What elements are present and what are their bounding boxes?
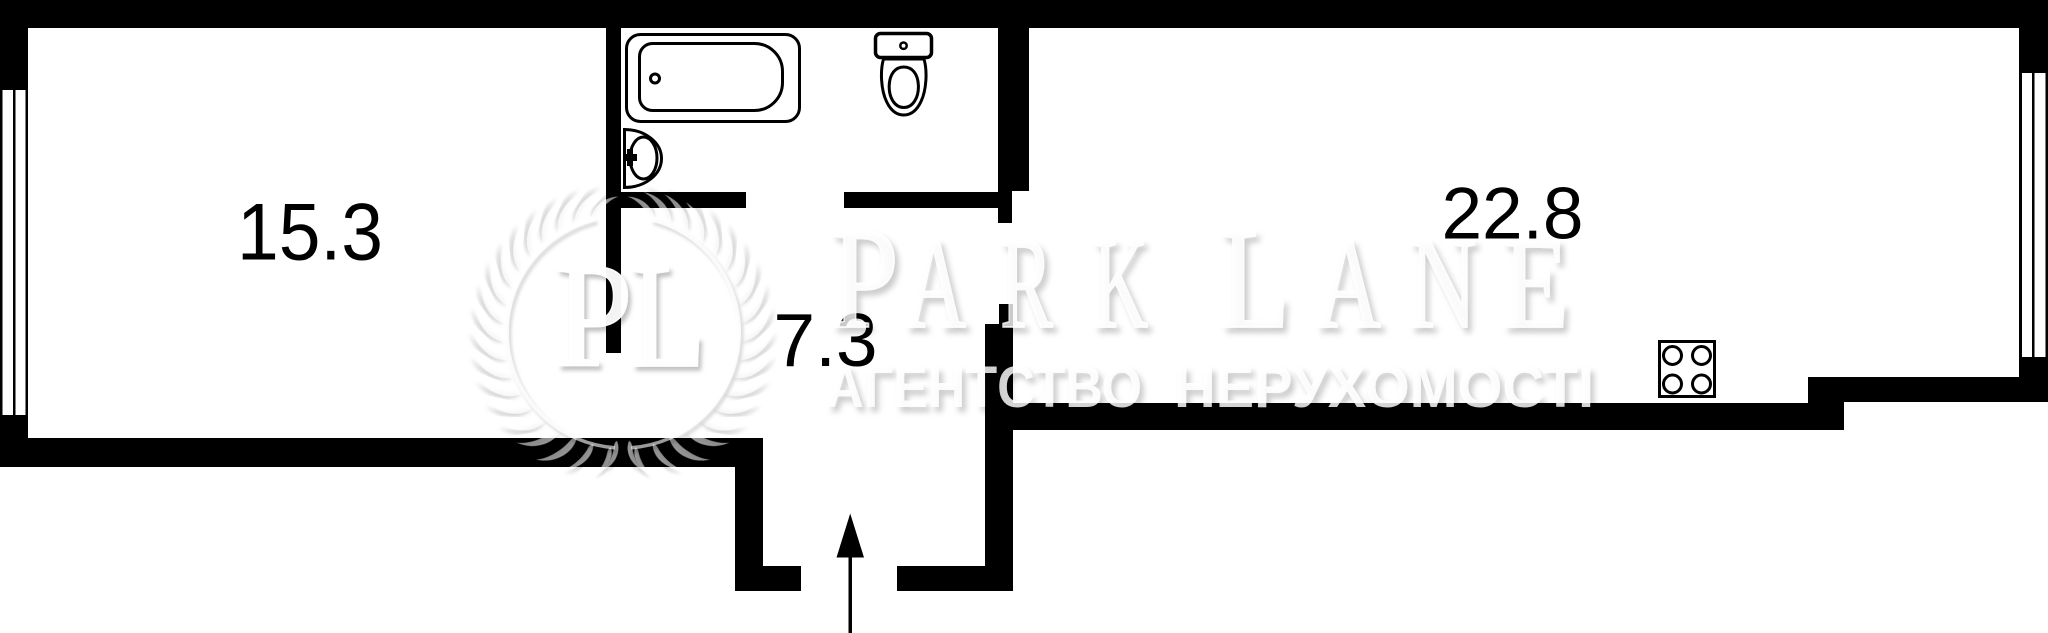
svg-text:АГЕНТСТВО: АГЕНТСТВО xyxy=(826,355,1142,420)
svg-text:R: R xyxy=(1000,211,1053,356)
svg-text:P: P xyxy=(830,199,899,359)
svg-text:L: L xyxy=(1220,199,1290,359)
svg-text:P: P xyxy=(554,231,633,399)
svg-text:НЕРУХОМОСТІ: НЕРУХОМОСТІ xyxy=(1174,355,1594,420)
svg-text:15.3: 15.3 xyxy=(237,188,383,278)
svg-text:A: A xyxy=(1317,211,1381,356)
svg-text:E: E xyxy=(1502,211,1569,356)
svg-text:A: A xyxy=(906,211,966,356)
svg-text:L: L xyxy=(630,231,706,399)
svg-text:N: N xyxy=(1409,211,1477,356)
svg-text:K: K xyxy=(1093,211,1148,356)
